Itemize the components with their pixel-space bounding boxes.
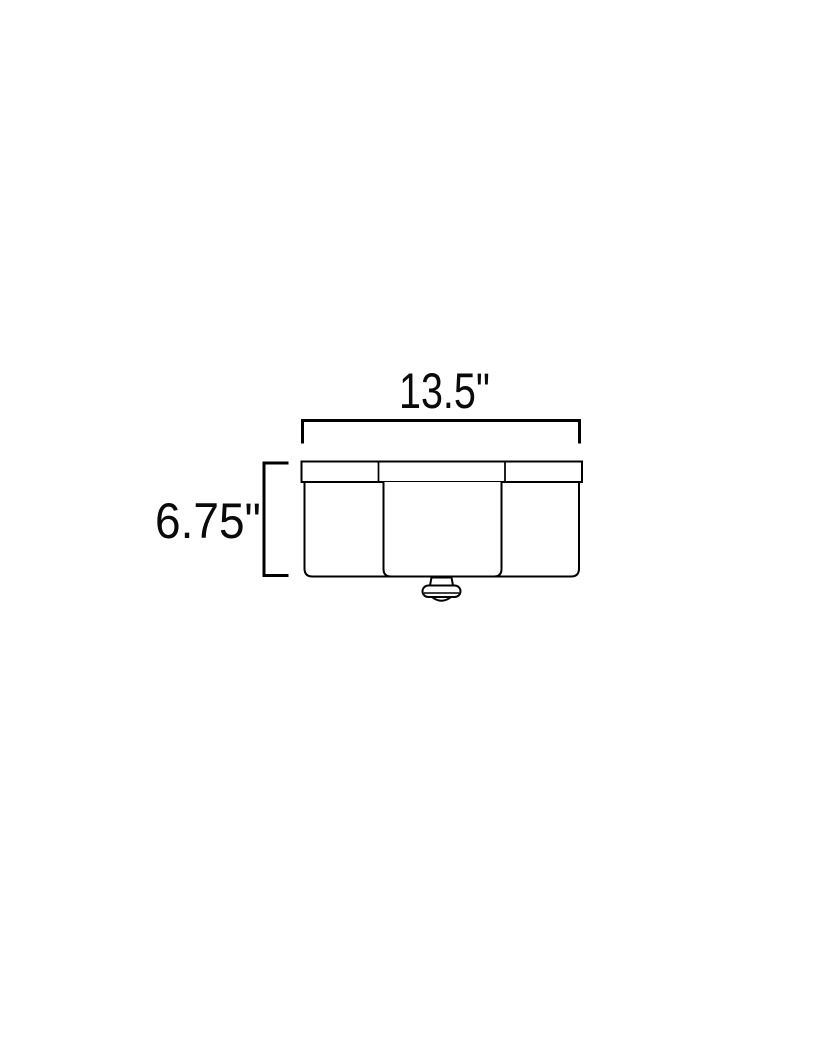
finial-knob — [423, 586, 461, 598]
dimension-diagram: 13.5" 6.75" — [0, 0, 834, 1042]
width-dimension-bracket — [303, 421, 580, 444]
finial-neck — [430, 578, 453, 586]
fixture-canopy-band — [302, 462, 583, 483]
fixture-center-panel — [384, 482, 502, 577]
fixture-line-drawing — [0, 0, 834, 1042]
height-dimension-bracket — [264, 463, 289, 576]
